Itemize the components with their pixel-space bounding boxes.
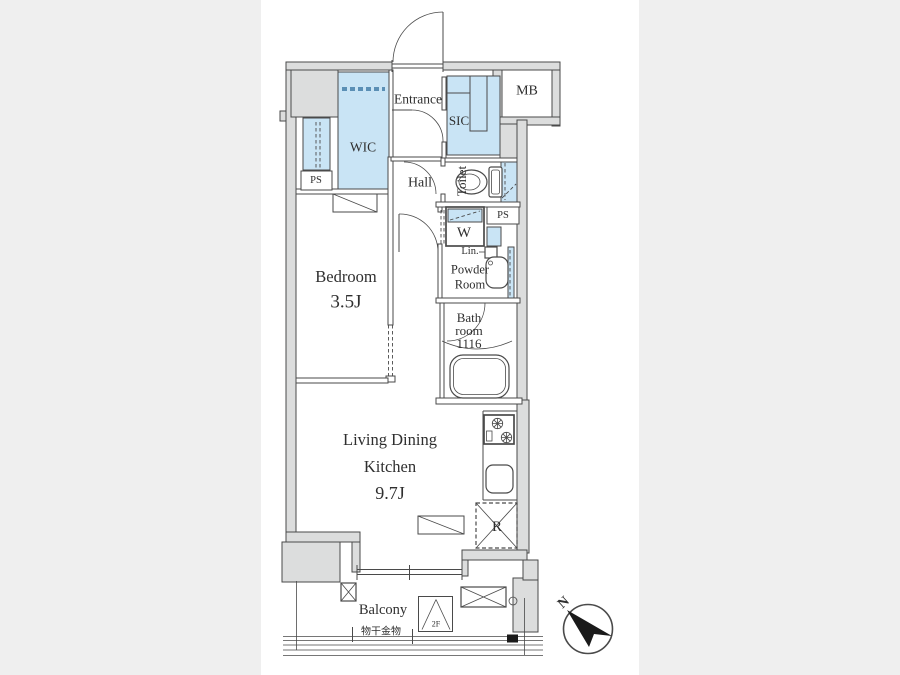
label-ps-upper: PS — [310, 175, 322, 187]
ldk-door-arc — [399, 214, 438, 252]
entrance-door-arc — [393, 12, 443, 62]
railing-post — [507, 635, 518, 643]
bedroom-sliding-door — [389, 325, 393, 377]
burner-icon — [501, 432, 511, 442]
label-entrance: Entrance — [394, 93, 442, 108]
stove — [484, 415, 514, 444]
label-bedroom-size: 3.5J — [330, 293, 361, 314]
label-washer: W — [457, 225, 471, 242]
linen-shelf — [485, 247, 497, 258]
kitchen-sink — [486, 465, 513, 493]
floorplan-page: Entrance WIC SIC MB Hall Toilet PS PS W … — [0, 0, 900, 675]
compass — [564, 605, 613, 654]
label-ldk-size: 9.7J — [375, 484, 405, 504]
label-hall: Hall — [408, 175, 432, 190]
label-wic: WIC — [350, 141, 376, 156]
label-sic: SIC — [449, 114, 469, 128]
label-powder-room: Powder Room — [444, 262, 496, 292]
ac-unit-space — [461, 587, 506, 607]
label-laundry-hardware: 物干金物 — [361, 627, 401, 638]
label-linen: Lin. — [461, 246, 478, 258]
powder-pipe-strip — [508, 247, 514, 300]
label-toilet: Toilet — [455, 166, 469, 196]
floorplan-drawing — [0, 0, 900, 675]
water-heater-box — [487, 227, 501, 246]
balcony-left-column — [282, 542, 340, 582]
label-ldk: Kitchen — [364, 458, 416, 476]
label-bedroom: Bedroom — [315, 268, 376, 286]
entrance-threshold — [392, 64, 443, 68]
sic-door-arc — [412, 110, 443, 142]
structural-void — [291, 70, 338, 117]
label-fridge: R — [492, 519, 502, 536]
drain-box — [341, 583, 356, 601]
powder-sliding-door — [441, 210, 444, 246]
label-balcony: Balcony — [359, 603, 407, 619]
label-floor-2f: 2F — [432, 621, 440, 630]
burner-icon — [492, 418, 502, 428]
label-ps-middle: PS — [497, 210, 509, 222]
label-bathroom-size: 1116 — [456, 337, 481, 351]
label-mb: MB — [516, 83, 538, 98]
north-arrow-icon — [567, 610, 612, 647]
balcony-right-column — [513, 578, 538, 632]
wic-side-strip — [303, 118, 330, 170]
label-ldk: Living Dining — [343, 431, 437, 449]
